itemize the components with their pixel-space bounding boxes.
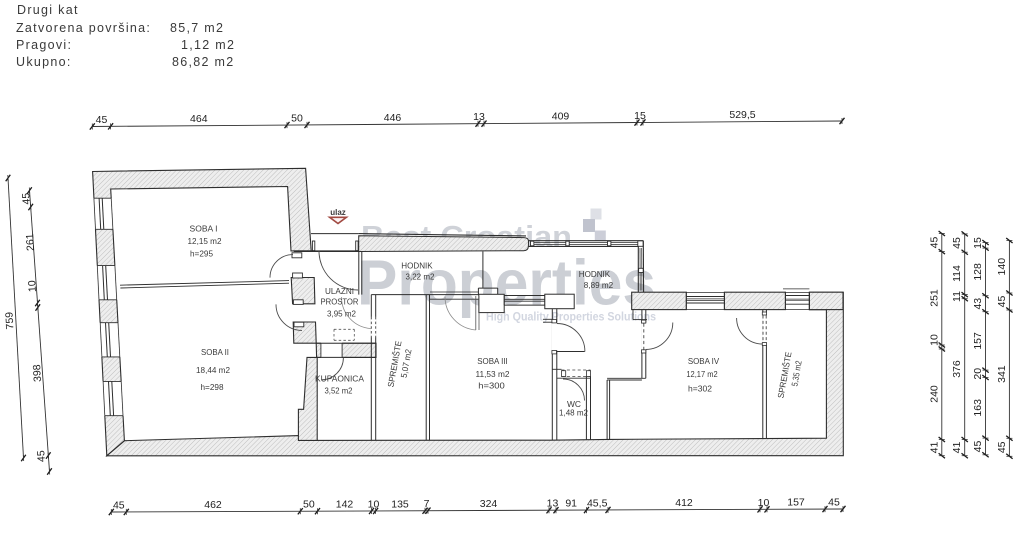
svg-text:15: 15 [972, 237, 984, 249]
svg-text:45: 45 [951, 237, 963, 249]
svg-text:251: 251 [928, 289, 940, 307]
svg-text:SOBA I: SOBA I [190, 224, 218, 234]
svg-text:462: 462 [204, 499, 222, 511]
svg-text:1,48 m2: 1,48 m2 [559, 408, 588, 418]
svg-text:41: 41 [928, 442, 940, 454]
svg-text:43: 43 [972, 298, 984, 310]
svg-text:45: 45 [96, 114, 108, 126]
svg-text:529,5: 529,5 [729, 109, 755, 121]
svg-text:45: 45 [35, 450, 48, 462]
svg-text:114: 114 [951, 265, 963, 282]
svg-text:128: 128 [972, 263, 984, 281]
svg-text:h=302: h=302 [688, 384, 712, 394]
svg-text:91: 91 [565, 498, 577, 510]
svg-text:157: 157 [787, 497, 805, 509]
svg-text:163: 163 [972, 399, 984, 417]
svg-text:h=300: h=300 [478, 381, 505, 391]
svg-text:45: 45 [996, 296, 1008, 308]
svg-text:SOBA II: SOBA II [201, 347, 229, 357]
svg-text:20: 20 [972, 368, 984, 380]
svg-text:142: 142 [336, 499, 354, 511]
svg-text:464: 464 [190, 113, 208, 125]
svg-text:341: 341 [996, 365, 1008, 383]
svg-text:ULAZNI: ULAZNI [325, 286, 354, 296]
svg-text:409: 409 [552, 111, 570, 123]
svg-text:SOBA III: SOBA III [477, 356, 508, 366]
svg-text:13: 13 [547, 498, 559, 510]
svg-text:45: 45 [113, 500, 125, 512]
svg-text:45: 45 [996, 441, 1008, 453]
svg-text:41: 41 [951, 442, 963, 454]
svg-text:High Quality Properties Soluti: High Quality Properties Solutions [486, 310, 656, 324]
svg-text:324: 324 [480, 498, 498, 510]
svg-text:PROSTOR: PROSTOR [321, 296, 359, 306]
svg-text:h=298: h=298 [201, 382, 224, 392]
svg-text:376: 376 [951, 360, 963, 378]
svg-text:HODNIK: HODNIK [579, 269, 611, 279]
svg-text:10: 10 [26, 280, 39, 292]
svg-text:3,95 m2: 3,95 m2 [327, 308, 356, 318]
svg-text:240: 240 [928, 385, 940, 403]
svg-text:140: 140 [996, 258, 1008, 276]
svg-text:3,22 m2: 3,22 m2 [406, 272, 435, 282]
svg-text:45: 45 [928, 237, 940, 249]
svg-text:h=295: h=295 [190, 249, 213, 259]
svg-text:13: 13 [473, 111, 485, 123]
svg-text:12,15 m2: 12,15 m2 [188, 236, 222, 246]
svg-text:45,5: 45,5 [587, 498, 608, 510]
svg-text:45: 45 [972, 441, 984, 453]
svg-text:ulaz: ulaz [330, 208, 346, 217]
svg-text:11: 11 [951, 291, 963, 302]
svg-text:412: 412 [675, 497, 693, 509]
svg-text:HODNIK: HODNIK [401, 261, 433, 271]
svg-text:261: 261 [24, 233, 37, 251]
svg-text:10: 10 [758, 497, 770, 509]
svg-text:3,52 m2: 3,52 m2 [325, 386, 353, 396]
svg-text:135: 135 [391, 498, 409, 510]
svg-text:KUPAONICA: KUPAONICA [315, 374, 364, 384]
svg-text:157: 157 [972, 332, 984, 350]
svg-text:18,44 m2: 18,44 m2 [196, 365, 230, 375]
svg-text:50: 50 [303, 499, 315, 511]
svg-text:11,53 m2: 11,53 m2 [476, 369, 510, 379]
svg-text:7: 7 [424, 498, 430, 510]
svg-text:10: 10 [928, 334, 940, 346]
svg-text:446: 446 [384, 112, 402, 124]
svg-text:10: 10 [368, 498, 380, 510]
svg-text:398: 398 [31, 364, 44, 382]
svg-text:50: 50 [291, 113, 303, 125]
svg-text:SOBA IV: SOBA IV [688, 356, 720, 366]
svg-text:759: 759 [3, 311, 16, 329]
svg-text:45: 45 [828, 497, 840, 509]
svg-text:45: 45 [20, 192, 33, 204]
svg-text:12,17 m2: 12,17 m2 [686, 369, 717, 379]
svg-text:8,89 m2: 8,89 m2 [584, 280, 614, 290]
svg-text:15: 15 [634, 110, 646, 122]
